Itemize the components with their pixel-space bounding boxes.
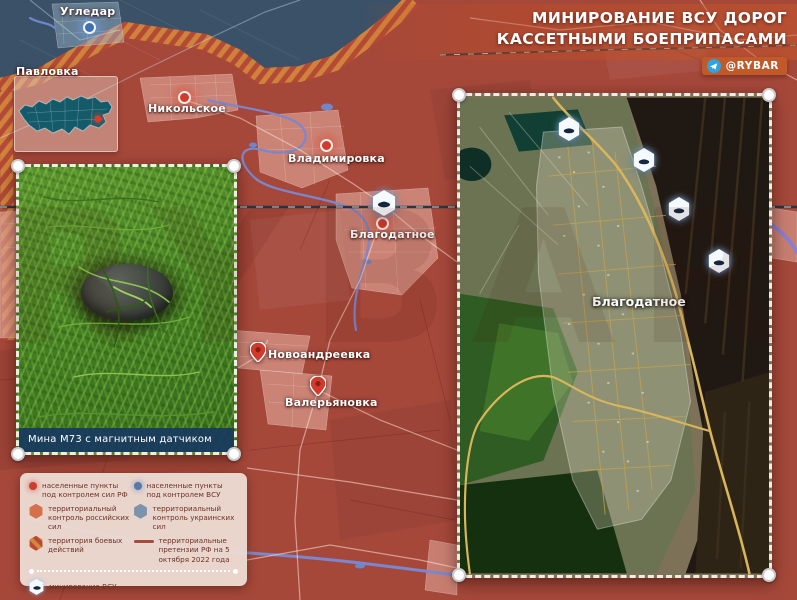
- city-label-ugledar: Угледар: [60, 5, 115, 18]
- connector-dot: [11, 159, 25, 173]
- city-label-valeryanovka: Валерьяновка: [285, 396, 378, 409]
- legend-item-mining: минирование ВСУ: [29, 579, 238, 595]
- legend-item-settlements-rf: населенные пункты под контролем сил РФ: [29, 481, 134, 500]
- pin-marker-icon-valeryanovka: [310, 376, 326, 396]
- mine-photo-inset: Мина М73 с магнитным датчиком: [16, 164, 237, 455]
- title-line-1: МИНИРОВАНИЕ ВСУ ДОРОГ: [497, 8, 787, 29]
- mine-hex-icon: [29, 579, 44, 595]
- satellite-inset: Благодатное: [457, 93, 772, 578]
- claims-line-icon: [134, 540, 154, 543]
- title-line-2: КАССЕТНЫМИ БОЕПРИПАСАМИ: [497, 29, 787, 50]
- map-legend: населенные пункты под контролем сил РФ н…: [20, 473, 247, 586]
- settlement-afu-dot-icon: [134, 482, 142, 490]
- connector-dot: [227, 159, 241, 173]
- ukraine-silhouette: [19, 96, 112, 134]
- legend-label: минирование ВСУ: [49, 579, 116, 591]
- city-label-blagodatnoye: Благодатное: [350, 228, 435, 241]
- ukraine-locator-map: [14, 76, 118, 152]
- settlement-dot-icon-vladimirovka: [320, 139, 333, 152]
- legend-item-claims-line: территориальные претензии РФ на 5 октябр…: [134, 536, 239, 564]
- rybar-brand-badge[interactable]: @RYBAR: [702, 57, 787, 75]
- settlement-rf-dot-icon: [29, 482, 37, 490]
- connector-dot: [762, 568, 776, 582]
- legend-label: территория боевых действий: [48, 536, 134, 555]
- connector-dot: [452, 568, 466, 582]
- legend-label: территориальный контроль российских сил: [48, 504, 134, 532]
- settlement-dot-icon-ugledar: [83, 21, 96, 34]
- city-label-vladimirovka: Владимировка: [288, 152, 385, 165]
- brand-handle: @RYBAR: [726, 60, 779, 72]
- conflict-area-dot: [95, 116, 102, 123]
- connector-dot: [11, 447, 25, 461]
- legend-divider: [29, 569, 238, 574]
- page-title: МИНИРОВАНИЕ ВСУ ДОРОГ КАССЕТНЫМИ БОЕПРИП…: [497, 8, 787, 50]
- territory-afu-hex-icon: [134, 504, 148, 519]
- territory-rf-hex-icon: [29, 504, 43, 519]
- mine-icon: [372, 190, 396, 216]
- mine-icon: [633, 148, 655, 172]
- legend-item-territory-rf: территориальный контроль российских сил: [29, 504, 134, 532]
- connector-dot: [452, 88, 466, 102]
- legend-label: населенные пункты под контролем сил РФ: [42, 481, 134, 500]
- combat-zone-hex-icon: [29, 536, 43, 551]
- mine-icon: [668, 197, 690, 221]
- mine-icon: [558, 117, 580, 141]
- legend-item-territory-afu: территориальный контроль украинских сил: [134, 504, 239, 532]
- legend-label: территориальный контроль украинских сил: [153, 504, 239, 532]
- telegram-icon: [707, 59, 721, 73]
- city-label-nikolskoye: Никольское: [148, 102, 226, 115]
- legend-item-combat-zone: территория боевых действий: [29, 536, 134, 564]
- satellite-village-label: Благодатное: [592, 294, 686, 309]
- city-label-pavlovka: Павловка: [16, 65, 79, 78]
- mine-icon: [708, 249, 730, 273]
- legend-label: населенные пункты под контролем ВСУ: [147, 481, 239, 500]
- legend-item-settlements-afu: населенные пункты под контролем ВСУ: [134, 481, 239, 500]
- photo-caption: Мина М73 с магнитным датчиком: [19, 428, 234, 452]
- legend-label: территориальные претензии РФ на 5 октябр…: [159, 536, 239, 564]
- city-label-novoandreyevka: Новоандреевка: [268, 348, 370, 361]
- connector-dot: [762, 88, 776, 102]
- pin-marker-icon-novoandreyevka: [250, 342, 266, 362]
- connector-dot: [227, 447, 241, 461]
